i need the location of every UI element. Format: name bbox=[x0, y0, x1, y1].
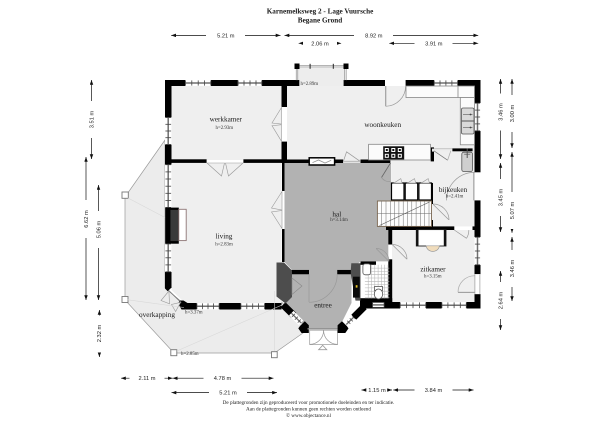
svg-text:3.00 m: 3.00 m bbox=[510, 105, 516, 123]
svg-text:2.11 m: 2.11 m bbox=[139, 376, 156, 382]
svg-text:3.51 m: 3.51 m bbox=[89, 111, 95, 129]
svg-text:h=2.83m: h=2.83m bbox=[215, 243, 233, 248]
svg-text:4.78 m: 4.78 m bbox=[214, 376, 232, 382]
svg-text:entree: entree bbox=[314, 302, 332, 310]
svg-text:2.32 m: 2.32 m bbox=[97, 325, 103, 343]
svg-text:5.07 m: 5.07 m bbox=[510, 202, 516, 220]
svg-text:h=2.89m: h=2.89m bbox=[301, 82, 319, 87]
svg-text:De plattegronden zijn geproduc: De plattegronden zijn geproduceerd voor … bbox=[223, 400, 395, 406]
svg-text:Aan de plattegronden kunnen ge: Aan de plattegronden kunnen geen rechten… bbox=[246, 407, 371, 413]
svg-text:werkkamer: werkkamer bbox=[210, 116, 243, 124]
svg-text:© www.objectance.nl: © www.objectance.nl bbox=[286, 412, 332, 419]
svg-text:woonkeuken: woonkeuken bbox=[364, 121, 401, 129]
svg-text:Begane Grond: Begane Grond bbox=[298, 17, 342, 25]
svg-text:5.21 m: 5.21 m bbox=[217, 33, 235, 39]
svg-text:3.46 m: 3.46 m bbox=[498, 103, 504, 121]
svg-text:Karnemelksweg 2 - Lage Vuursch: Karnemelksweg 2 - Lage Vuursche bbox=[267, 8, 374, 16]
svg-text:h=3.15m: h=3.15m bbox=[424, 274, 442, 279]
svg-text:h=2.93m: h=2.93m bbox=[216, 126, 234, 131]
svg-text:5.21 m: 5.21 m bbox=[219, 391, 237, 397]
svg-text:3.84 m: 3.84 m bbox=[425, 388, 443, 394]
svg-text:overkapping: overkapping bbox=[139, 311, 175, 319]
svg-text:zitkamer: zitkamer bbox=[420, 266, 446, 274]
svg-text:h=3.37m: h=3.37m bbox=[185, 311, 203, 316]
svg-text:h=2.85m: h=2.85m bbox=[181, 352, 199, 357]
svg-text:5.06 m: 5.06 m bbox=[96, 221, 102, 239]
svg-text:2.64 m: 2.64 m bbox=[498, 292, 504, 310]
svg-text:1.15 m: 1.15 m bbox=[368, 388, 386, 394]
svg-text:h=3.14m: h=3.14m bbox=[330, 218, 348, 223]
svg-text:h=2.41m: h=2.41m bbox=[446, 194, 464, 199]
svg-text:3.46 m: 3.46 m bbox=[510, 260, 516, 278]
svg-text:3.91 m: 3.91 m bbox=[425, 41, 443, 47]
svg-text:2.06 m: 2.06 m bbox=[311, 41, 329, 47]
svg-text:living: living bbox=[216, 233, 233, 241]
svg-text:3.45 m: 3.45 m bbox=[498, 189, 504, 207]
svg-text:6.62 m: 6.62 m bbox=[84, 210, 90, 228]
svg-text:bijkeuken: bijkeuken bbox=[439, 186, 468, 194]
svg-text:8.92 m: 8.92 m bbox=[365, 33, 383, 39]
